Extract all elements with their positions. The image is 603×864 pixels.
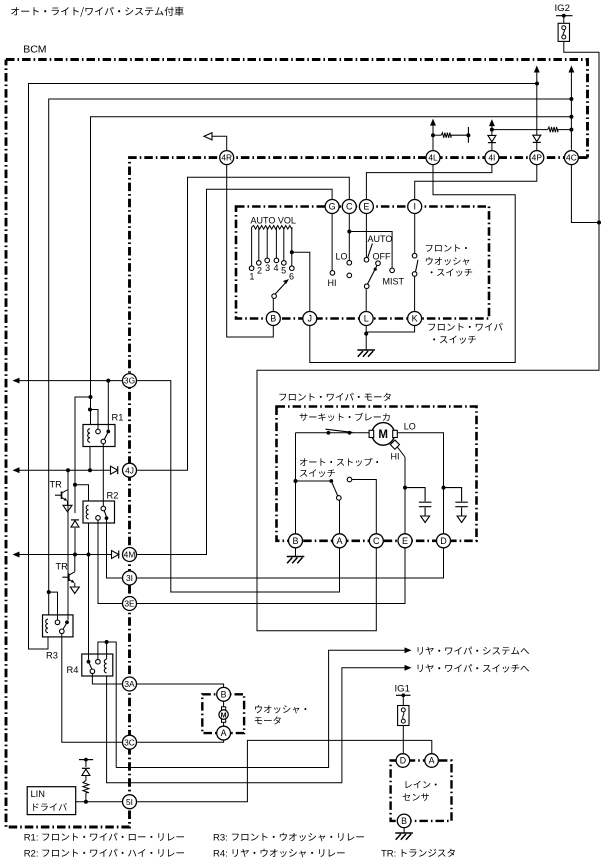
svg-text:MIST: MIST: [383, 277, 405, 287]
svg-text:HI: HI: [328, 278, 337, 288]
svg-text:LIN: LIN: [31, 789, 45, 799]
svg-text:J: J: [308, 314, 313, 324]
svg-text:3I: 3I: [126, 573, 133, 583]
svg-text:R3:: R3:: [213, 833, 228, 844]
svg-text:C: C: [373, 536, 380, 546]
svg-text:3E: 3E: [124, 599, 135, 609]
svg-text:C: C: [346, 202, 353, 212]
svg-text:1: 1: [249, 272, 254, 282]
svg-text:4J: 4J: [125, 465, 134, 475]
svg-text:K: K: [412, 314, 418, 324]
svg-text:B: B: [292, 536, 298, 546]
svg-text:TR:: TR:: [381, 849, 396, 860]
svg-text:3G: 3G: [124, 376, 135, 386]
svg-text:R1: R1: [112, 413, 124, 423]
svg-text:HI: HI: [391, 451, 400, 461]
svg-text:IG1: IG1: [395, 684, 410, 695]
svg-text:R4:: R4:: [213, 849, 228, 860]
svg-text:4: 4: [273, 263, 278, 273]
svg-text:2: 2: [257, 266, 262, 276]
svg-text:3C: 3C: [124, 737, 135, 747]
svg-text:M: M: [378, 429, 388, 441]
svg-text:TR: TR: [56, 562, 69, 572]
svg-text:G: G: [329, 202, 336, 212]
svg-text:B: B: [221, 689, 227, 699]
svg-text:5I: 5I: [126, 797, 133, 807]
svg-text:E: E: [363, 202, 369, 212]
svg-text:D: D: [400, 756, 406, 766]
svg-text:R4: R4: [67, 665, 79, 675]
svg-text:LO: LO: [404, 421, 416, 431]
svg-text:R2: R2: [107, 490, 119, 500]
svg-text:IG2: IG2: [555, 3, 570, 14]
svg-text:BCM: BCM: [23, 44, 46, 56]
svg-text:D: D: [440, 536, 447, 546]
svg-text:B: B: [401, 816, 407, 826]
svg-text:4P: 4P: [532, 153, 543, 163]
svg-text:A: A: [336, 536, 342, 546]
svg-text:A: A: [221, 728, 227, 738]
svg-text:B: B: [270, 314, 276, 324]
svg-text:5: 5: [281, 266, 286, 276]
svg-text:LO: LO: [336, 252, 348, 262]
svg-text:4I: 4I: [488, 153, 495, 163]
svg-text:4R: 4R: [221, 153, 232, 163]
svg-text:R1:: R1:: [24, 833, 39, 844]
svg-text:I: I: [413, 202, 416, 212]
svg-text:M: M: [221, 710, 227, 719]
svg-text:AUTO: AUTO: [368, 234, 393, 244]
svg-text:6: 6: [289, 272, 294, 282]
svg-text:R2:: R2:: [24, 849, 39, 860]
svg-text:R3: R3: [46, 651, 58, 661]
svg-text:AUTO VOL: AUTO VOL: [251, 216, 296, 226]
svg-text:L: L: [364, 314, 369, 324]
svg-text:4M: 4M: [124, 550, 136, 560]
svg-text:E: E: [402, 536, 408, 546]
svg-text:OFF: OFF: [373, 252, 391, 262]
svg-text:A: A: [429, 756, 435, 766]
svg-text:3: 3: [265, 263, 270, 273]
svg-text:4L: 4L: [428, 153, 438, 163]
svg-text:TR: TR: [50, 480, 63, 490]
svg-text:3A: 3A: [124, 679, 135, 689]
svg-text:4C: 4C: [566, 153, 577, 163]
